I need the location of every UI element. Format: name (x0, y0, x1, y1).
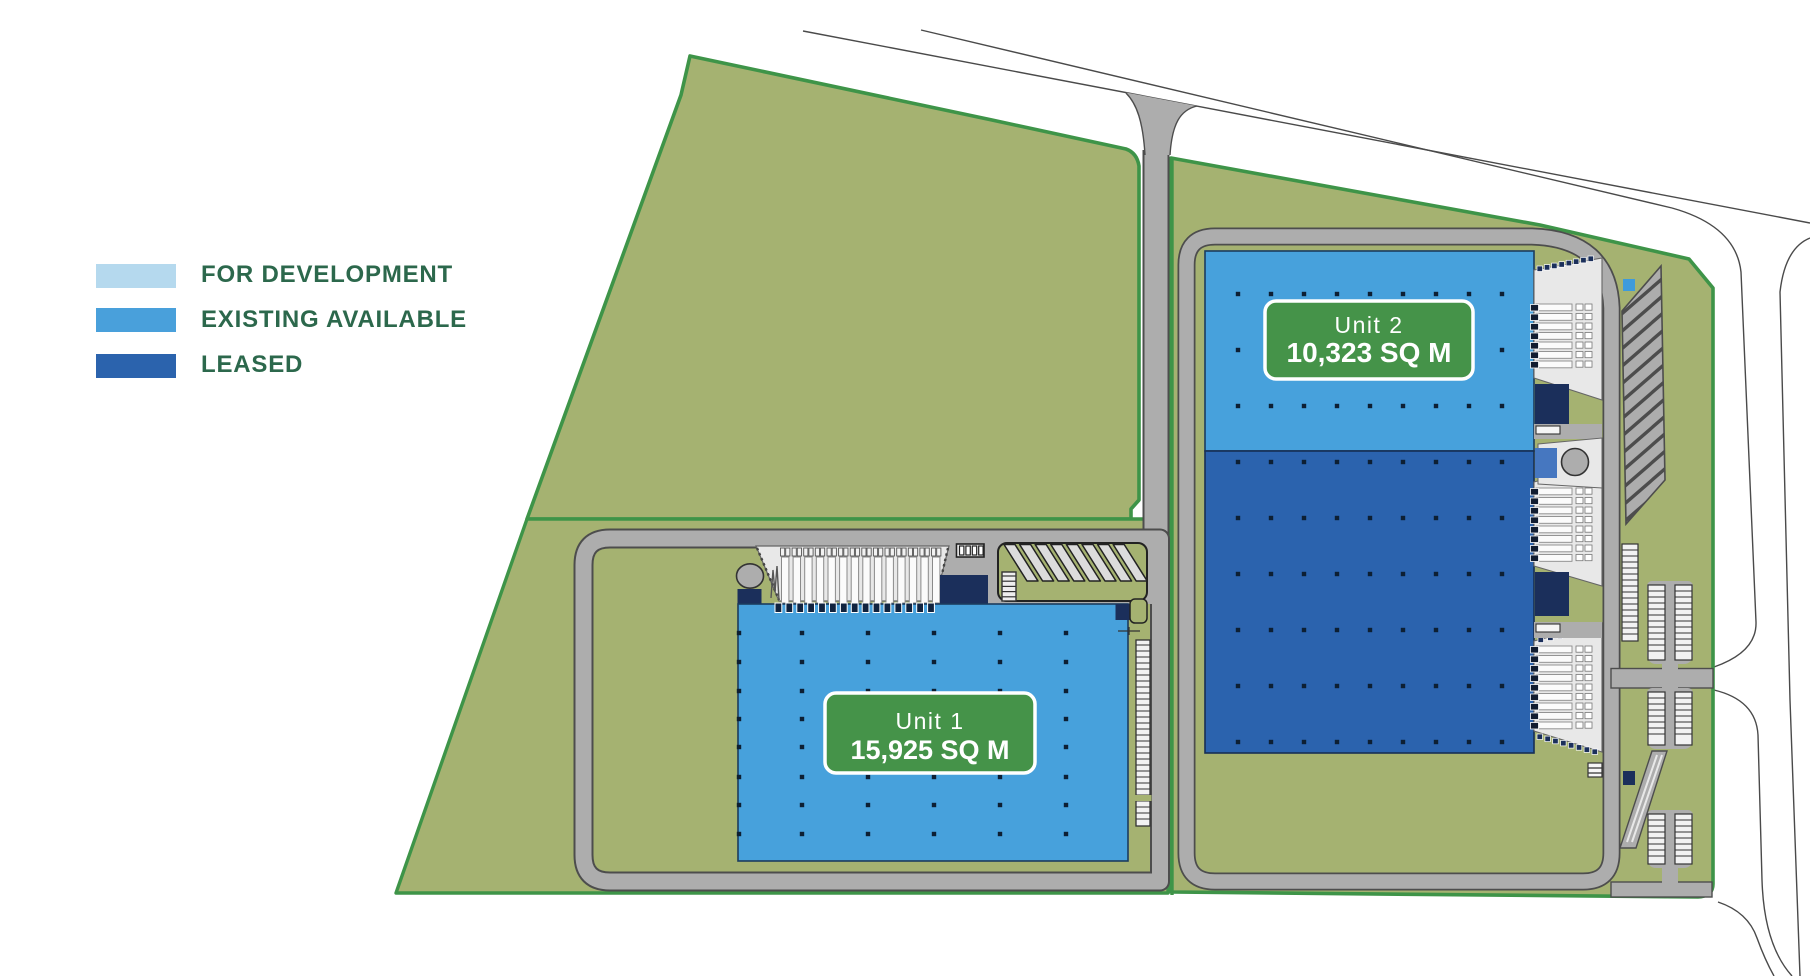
svg-text:EXISTING AVAILABLE: EXISTING AVAILABLE (201, 306, 467, 333)
svg-text:Unit 1: Unit 1 (895, 708, 964, 734)
svg-text:15,925 SQ M: 15,925 SQ M (850, 735, 1009, 765)
svg-text:FOR DEVELOPMENT: FOR DEVELOPMENT (201, 261, 453, 288)
svg-text:LEASED: LEASED (201, 351, 303, 378)
svg-text:Unit 2: Unit 2 (1334, 312, 1403, 338)
svg-text:10,323 SQ M: 10,323 SQ M (1287, 337, 1452, 368)
